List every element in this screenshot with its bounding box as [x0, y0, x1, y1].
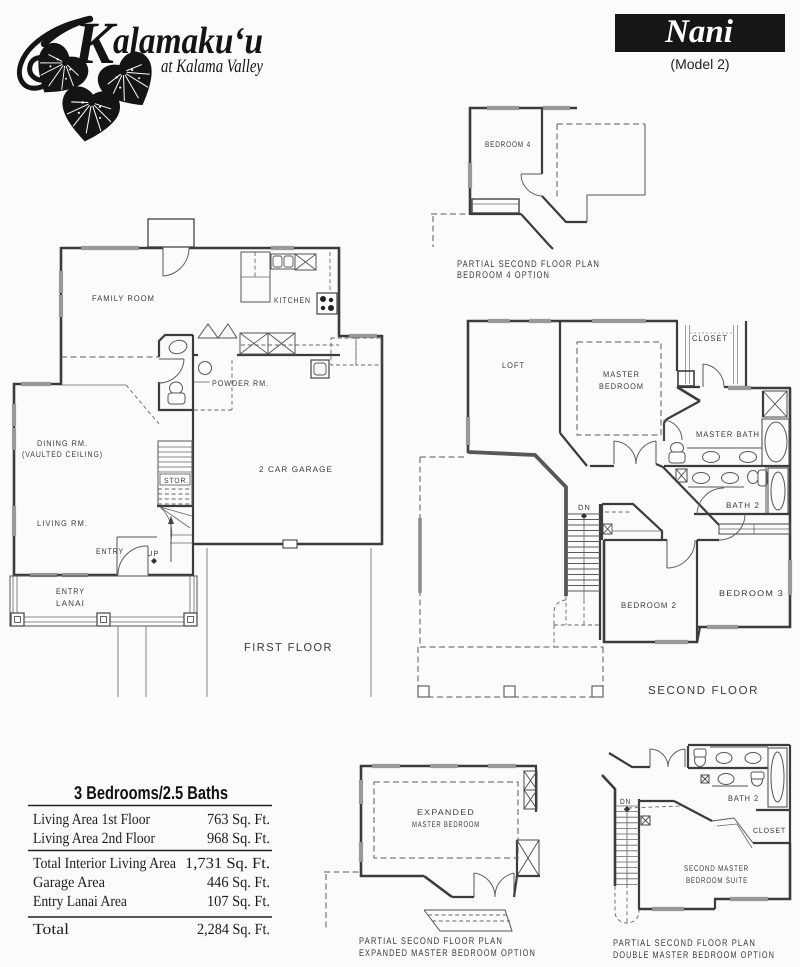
svg-text:SECOND MASTER: SECOND MASTER [684, 864, 749, 873]
svg-text:BEDROOM: BEDROOM [599, 382, 644, 391]
svg-text:PARTIAL SECOND FLOOR PLAN: PARTIAL SECOND FLOOR PLAN [359, 936, 503, 947]
svg-text:BATH 2: BATH 2 [726, 501, 760, 510]
svg-text:EXPANDED: EXPANDED [417, 808, 475, 817]
svg-text:Total: Total [33, 921, 69, 938]
svg-text:BATH 2: BATH 2 [728, 794, 759, 803]
svg-text:DOUBLE MASTER BEDROOM OPTION: DOUBLE MASTER BEDROOM OPTION [613, 950, 775, 961]
svg-text:446 Sq. Ft.: 446 Sq. Ft. [207, 874, 270, 891]
svg-text:1,731 Sq. Ft.: 1,731 Sq. Ft. [185, 855, 270, 872]
svg-text:UP: UP [147, 549, 159, 558]
svg-text:LIVING RM.: LIVING RM. [37, 519, 88, 528]
svg-text:107 Sq. Ft.: 107 Sq. Ft. [207, 893, 270, 910]
svg-text:763 Sq. Ft.: 763 Sq. Ft. [207, 811, 270, 828]
svg-text:KITCHEN: KITCHEN [274, 296, 311, 305]
svg-text:MASTER BEDROOM: MASTER BEDROOM [412, 820, 480, 829]
svg-text:STOR.: STOR. [164, 476, 189, 485]
svg-text:BEDROOM 4 OPTION: BEDROOM 4 OPTION [457, 270, 550, 281]
svg-text:BEDROOM 4: BEDROOM 4 [485, 140, 531, 149]
svg-text:ENTRY: ENTRY [56, 587, 85, 596]
svg-text:Living Area 2nd Floor: Living Area 2nd Floor [33, 830, 156, 847]
svg-text:SECOND FLOOR: SECOND FLOOR [648, 685, 759, 697]
svg-text:Nani: Nani [664, 14, 734, 50]
svg-text:Living Area 1st Floor: Living Area 1st Floor [33, 811, 151, 828]
svg-text:at Kalama Valley: at Kalama Valley [161, 56, 263, 77]
svg-text:LANAI: LANAI [56, 599, 85, 608]
svg-text:POWDER RM.: POWDER RM. [212, 379, 269, 388]
svg-text:BEDROOM 3: BEDROOM 3 [719, 589, 784, 598]
svg-text:Entry Lanai Area: Entry Lanai Area [33, 893, 127, 910]
svg-text:DN: DN [620, 797, 631, 806]
svg-text:3 Bedrooms/2.5 Baths: 3 Bedrooms/2.5 Baths [74, 782, 228, 803]
svg-text:MASTER: MASTER [603, 370, 640, 379]
svg-text:2,284 Sq. Ft.: 2,284 Sq. Ft. [197, 921, 270, 938]
svg-text:DN: DN [578, 503, 591, 512]
svg-text:PARTIAL SECOND FLOOR PLAN: PARTIAL SECOND FLOOR PLAN [457, 259, 600, 270]
svg-text:EXPANDED MASTER BEDROOM OPTION: EXPANDED MASTER BEDROOM OPTION [359, 948, 536, 959]
svg-text:LOFT: LOFT [502, 361, 525, 370]
svg-text:PARTIAL SECOND FLOOR PLAN: PARTIAL SECOND FLOOR PLAN [613, 938, 756, 949]
svg-text:Total Interior Living Area: Total Interior Living Area [33, 855, 176, 872]
svg-text:(Model 2): (Model 2) [670, 56, 729, 72]
svg-text:BEDROOM SUITE: BEDROOM SUITE [686, 876, 748, 885]
svg-text:(VAULTED CEILING): (VAULTED CEILING) [22, 450, 103, 459]
svg-text:2 CAR GARAGE: 2 CAR GARAGE [259, 465, 333, 474]
svg-text:Garage Area: Garage Area [33, 874, 105, 891]
svg-text:DINING RM.: DINING RM. [37, 439, 88, 448]
svg-text:BEDROOM 2: BEDROOM 2 [621, 601, 677, 610]
svg-text:CLOSET: CLOSET [692, 334, 728, 343]
svg-text:MASTER BATH: MASTER BATH [696, 430, 760, 439]
svg-text:968 Sq. Ft.: 968 Sq. Ft. [207, 830, 270, 847]
svg-text:ENTRY: ENTRY [96, 547, 124, 556]
svg-text:FAMILY ROOM: FAMILY ROOM [92, 294, 155, 303]
svg-text:CLOSET: CLOSET [753, 826, 786, 835]
svg-text:FIRST FLOOR: FIRST FLOOR [244, 642, 333, 654]
